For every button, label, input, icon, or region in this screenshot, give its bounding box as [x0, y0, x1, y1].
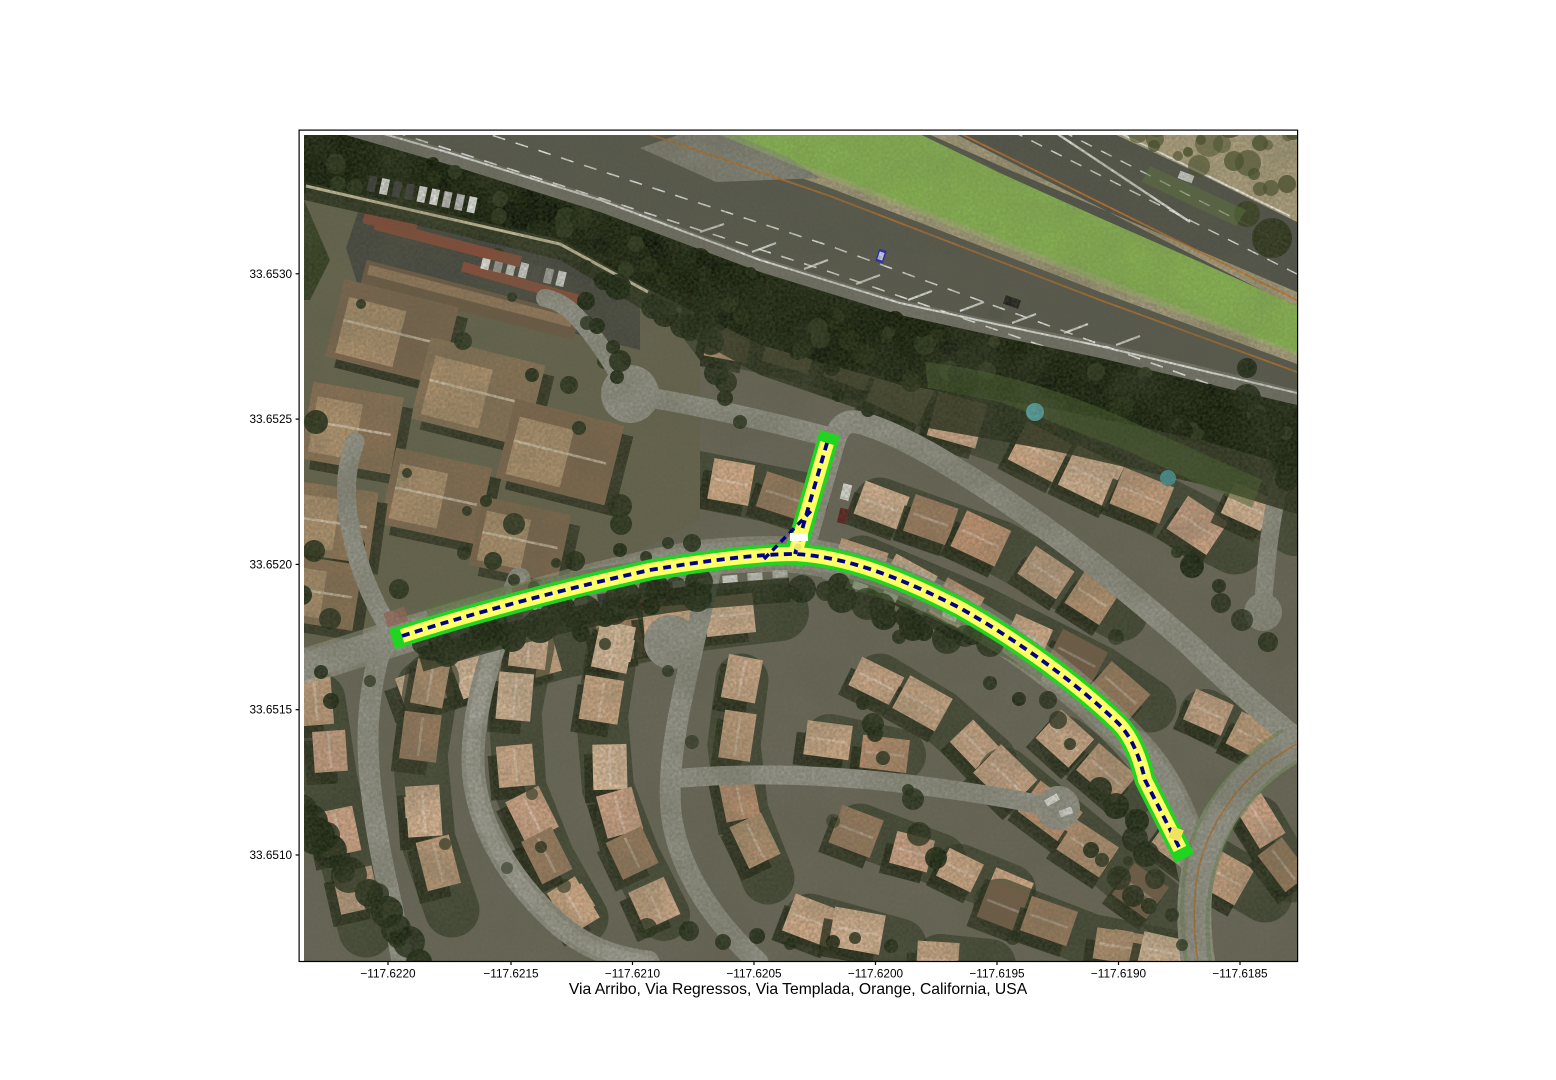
svg-text:−117.6190: −117.6190 [1091, 967, 1147, 981]
svg-text:33.6530: 33.6530 [249, 267, 292, 281]
svg-text:33.6515: 33.6515 [249, 703, 292, 717]
svg-text:−117.6200: −117.6200 [848, 967, 904, 981]
svg-text:−117.6220: −117.6220 [360, 967, 416, 981]
svg-text:33.6525: 33.6525 [249, 412, 292, 426]
svg-text:−117.6195: −117.6195 [969, 967, 1025, 981]
svg-text:−117.6185: −117.6185 [1212, 967, 1268, 981]
svg-text:−117.6215: −117.6215 [483, 967, 539, 981]
svg-text:−117.6210: −117.6210 [605, 967, 661, 981]
svg-text:33.6520: 33.6520 [249, 557, 292, 571]
svg-text:33.6510: 33.6510 [249, 848, 292, 862]
svg-text:Via Arribo, Via Regressos, Via: Via Arribo, Via Regressos, Via Templada,… [569, 981, 1028, 998]
svg-text:−117.6205: −117.6205 [726, 967, 782, 981]
